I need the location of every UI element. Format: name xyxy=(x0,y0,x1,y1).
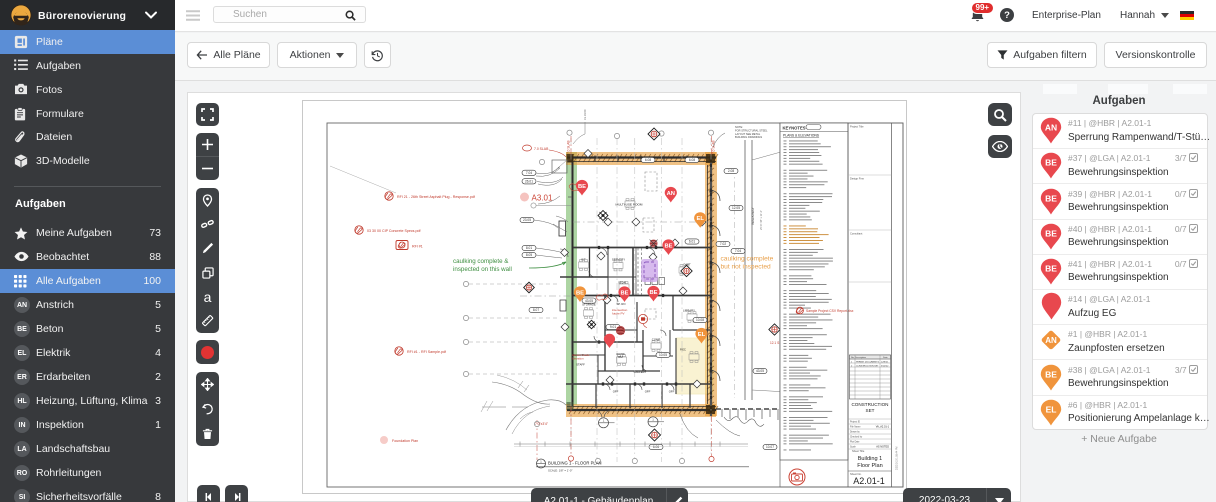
svg-text:BE: BE xyxy=(1045,158,1057,168)
svg-text:BE: BE xyxy=(1045,263,1057,273)
svg-text:BE: BE xyxy=(1045,193,1057,203)
svg-text:AN: AN xyxy=(1045,123,1057,133)
svg-text:BE: BE xyxy=(1045,228,1057,238)
svg-text:BE: BE xyxy=(1045,369,1057,379)
svg-text:AN: AN xyxy=(1045,336,1057,345)
svg-text:EL: EL xyxy=(1046,404,1057,414)
